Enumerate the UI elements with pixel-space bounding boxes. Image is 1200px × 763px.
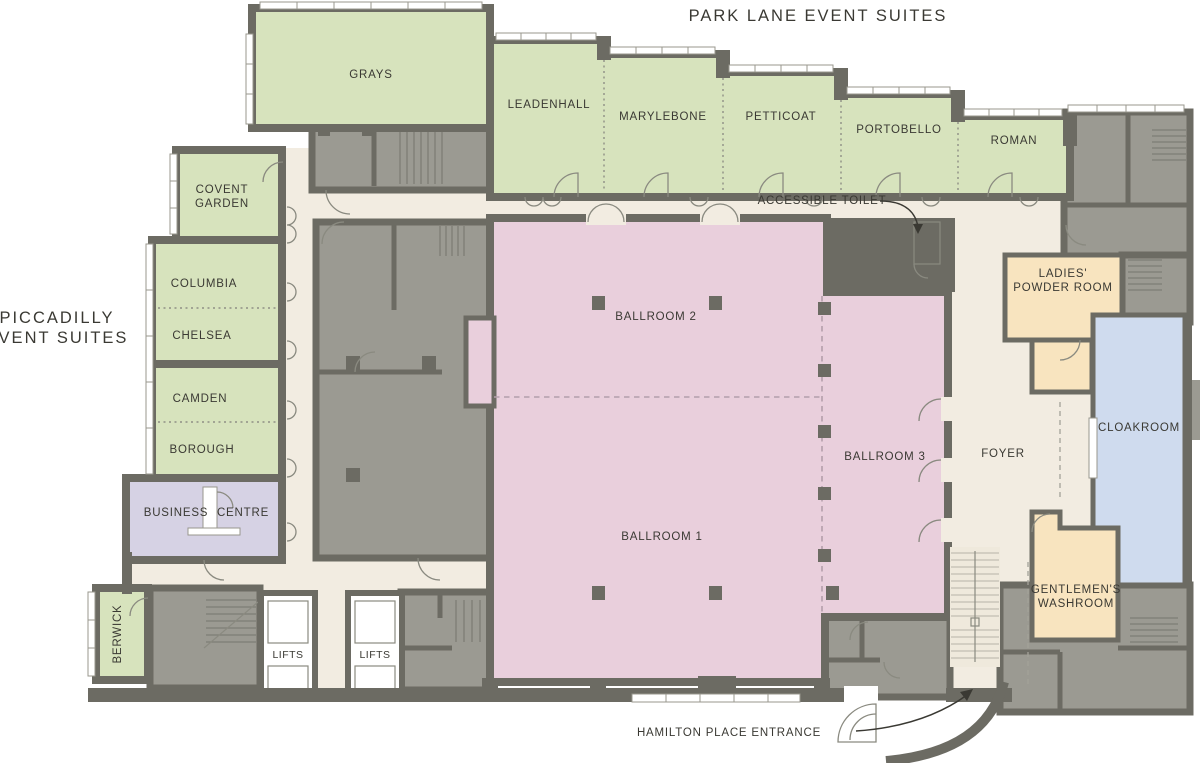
column	[818, 549, 831, 562]
label-roman: ROMAN	[991, 135, 1038, 147]
column	[592, 296, 605, 310]
grand-staircase	[950, 547, 1000, 667]
label-business: BUSINESS	[144, 507, 209, 519]
label-hamilton-entrance: HAMILTON PLACE ENTRANCE	[637, 727, 821, 739]
column	[818, 302, 831, 315]
label-ballroom-2: BALLROOM 2	[615, 311, 697, 323]
column	[422, 356, 436, 370]
label-leadenhall: LEADENHALL	[508, 99, 591, 111]
room-gentlemens-washroom	[1032, 512, 1118, 640]
label-chelsea: CHELSEA	[172, 330, 231, 342]
label-camden: CAMDEN	[173, 393, 228, 405]
label-foyer: FOYER	[981, 448, 1025, 460]
column	[818, 487, 831, 500]
label-grays: GRAYS	[349, 69, 392, 81]
label-ballroom-3: BALLROOM 3	[844, 451, 926, 463]
accessible-toilet-area	[827, 218, 955, 292]
ladies-lobby	[1032, 340, 1092, 392]
park-lane-title: PARK LANE EVENT SUITES	[689, 7, 948, 25]
label-covent-garden-line1: COVENT	[196, 184, 249, 196]
label-gents-line1: GENTLEMEN'S	[1031, 584, 1121, 596]
label-accessible-toilet: ACCESSIBLE TOILET	[758, 195, 887, 207]
column	[592, 586, 605, 600]
ballroom-alcove	[466, 318, 494, 406]
room-grays	[252, 8, 490, 128]
label-marylebone: MARYLEBONE	[619, 111, 707, 123]
label-ladies-line1: LADIES'	[1039, 268, 1088, 280]
column	[818, 425, 831, 438]
label-covent-garden-line2: GARDEN	[195, 198, 249, 210]
label-borough: BOROUGH	[169, 444, 234, 456]
label-gents-line2: WASHROOM	[1038, 598, 1114, 610]
column	[818, 364, 831, 377]
column	[826, 586, 839, 600]
label-portobello: PORTOBELLO	[856, 124, 942, 136]
room-columbia-chelsea	[152, 240, 282, 364]
label-lifts-a: LIFTS	[272, 649, 303, 661]
label-ballroom-1: BALLROOM 1	[621, 531, 703, 543]
label-ladies-line2: POWDER ROOM	[1013, 282, 1113, 294]
label-columbia: COLUMBIA	[171, 278, 237, 290]
label-petticoat: PETTICOAT	[746, 111, 817, 123]
piccadilly-title-line2: EVENT SUITES	[0, 329, 128, 347]
room-camden-borough	[152, 364, 282, 478]
label-cloakroom: CLOAKROOM	[1098, 422, 1180, 434]
floor-plan-page: PARK LANE EVENT SUITES PICCADILLY EVENT …	[0, 0, 1200, 763]
column	[709, 296, 722, 310]
label-lifts-b: LIFTS	[359, 649, 390, 661]
piccadilly-title-line1: PICCADILLY	[0, 309, 115, 327]
column	[346, 356, 360, 370]
cloakroom-counter	[1089, 418, 1097, 478]
column	[709, 586, 722, 600]
floor-plan: PARK LANE EVENT SUITES PICCADILLY EVENT …	[0, 0, 1200, 763]
column	[346, 468, 360, 482]
label-centre: CENTRE	[217, 507, 269, 519]
label-berwick: BERWICK	[112, 604, 124, 663]
